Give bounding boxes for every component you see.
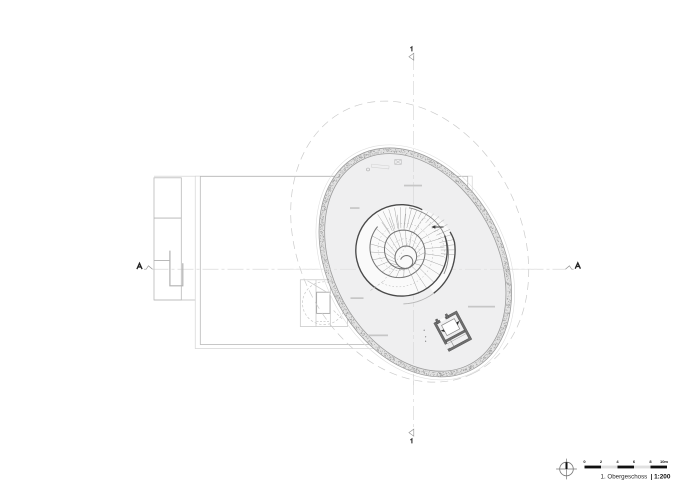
svg-text:| 1:200: | 1:200 bbox=[651, 474, 671, 481]
svg-text:1. Obergeschoss: 1. Obergeschoss bbox=[601, 474, 648, 481]
svg-text:10m: 10m bbox=[660, 459, 668, 464]
